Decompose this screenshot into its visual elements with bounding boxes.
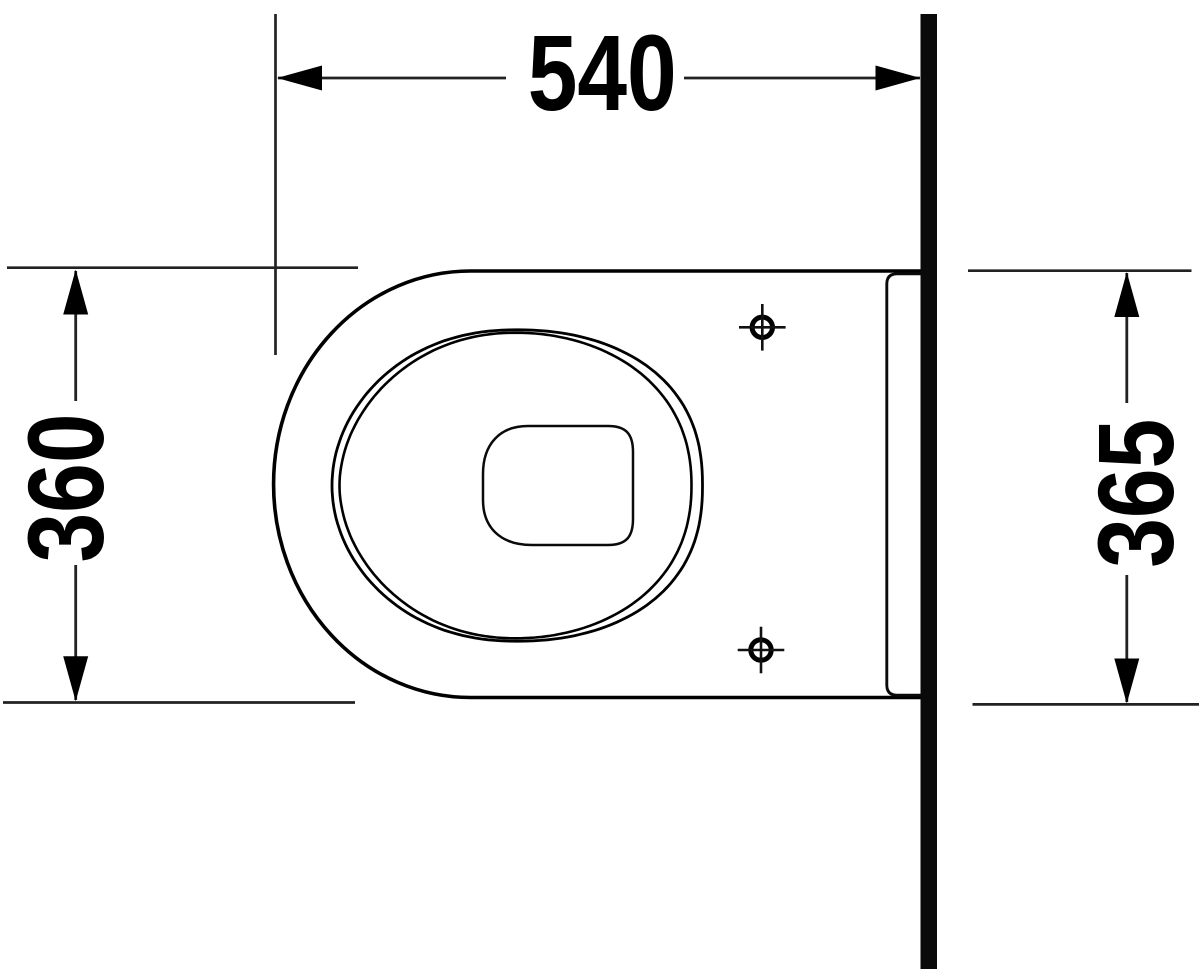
svg-text:365: 365 xyxy=(1075,419,1196,568)
svg-text:540: 540 xyxy=(528,12,677,133)
svg-text:360: 360 xyxy=(5,414,126,563)
